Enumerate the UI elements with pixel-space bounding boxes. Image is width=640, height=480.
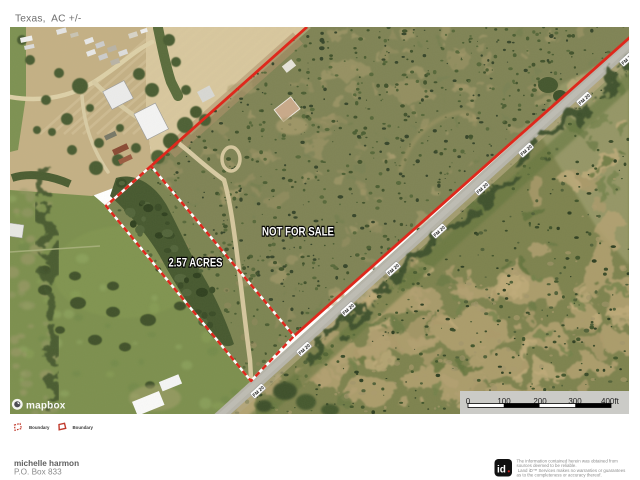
svg-text:Boundary: Boundary [73,425,94,430]
svg-text:id: id [497,465,506,476]
svg-text:Boundary: Boundary [29,425,50,430]
svg-text:P.O. Box 833: P.O. Box 833 [14,468,62,477]
svg-text:Texas, AC +/-: Texas, AC +/- [15,14,82,25]
svg-text:as to the completeness or accu: as to the completeness or accuracy there… [517,473,602,478]
svg-text:mapbox: mapbox [26,401,66,412]
